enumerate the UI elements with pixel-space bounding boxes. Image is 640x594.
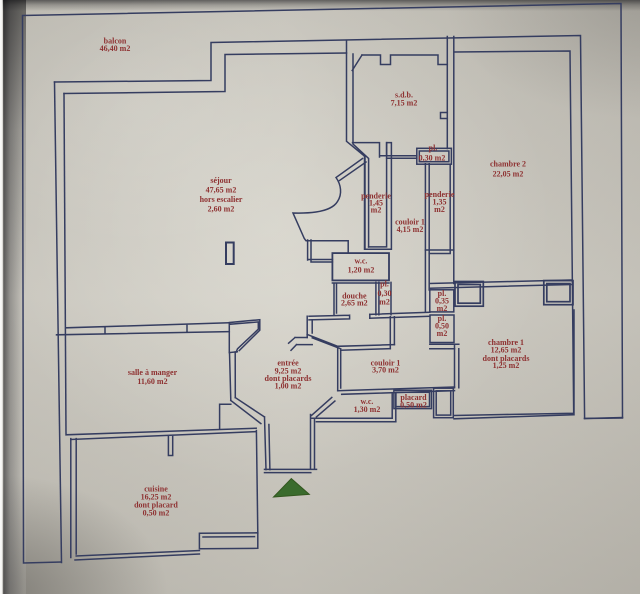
svg-text:3,70 m2: 3,70 m2: [372, 366, 399, 375]
svg-text:0,50 m2: 0,50 m2: [400, 401, 427, 410]
svg-text:7,15 m2: 7,15 m2: [391, 99, 418, 108]
svg-text:m2: m2: [437, 304, 448, 313]
svg-text:0,50 m2: 0,50 m2: [143, 509, 170, 518]
svg-text:0,30 m2: 0,30 m2: [419, 154, 446, 163]
svg-text:séjour: séjour: [210, 176, 232, 185]
svg-text:1,20 m2: 1,20 m2: [348, 265, 375, 274]
svg-text:salle à manger: salle à manger: [128, 368, 178, 377]
svg-text:22,05 m2: 22,05 m2: [493, 170, 524, 179]
svg-text:m2: m2: [379, 298, 390, 307]
svg-text:m2: m2: [437, 329, 448, 338]
svg-text:m2: m2: [434, 205, 445, 214]
svg-text:1,00 m2: 1,00 m2: [275, 382, 302, 391]
svg-text:chambre 2: chambre 2: [490, 160, 526, 169]
svg-text:hors escalier: hors escalier: [200, 195, 243, 204]
svg-text:w.c.: w.c.: [355, 257, 368, 266]
svg-text:pl.: pl.: [380, 280, 389, 289]
svg-text:1,30 m2: 1,30 m2: [354, 405, 381, 414]
svg-text:pl.: pl.: [429, 144, 438, 153]
svg-text:2,65 m2: 2,65 m2: [341, 299, 368, 308]
svg-text:2,60 m2: 2,60 m2: [208, 205, 235, 214]
svg-text:4,15 m2: 4,15 m2: [397, 225, 424, 234]
svg-text:1,25 m2: 1,25 m2: [493, 361, 520, 370]
svg-text:47,65 m2: 47,65 m2: [206, 186, 237, 195]
svg-text:m2: m2: [371, 206, 382, 215]
svg-text:11,60 m2: 11,60 m2: [137, 377, 167, 386]
svg-text:46,40 m2: 46,40 m2: [100, 44, 131, 53]
